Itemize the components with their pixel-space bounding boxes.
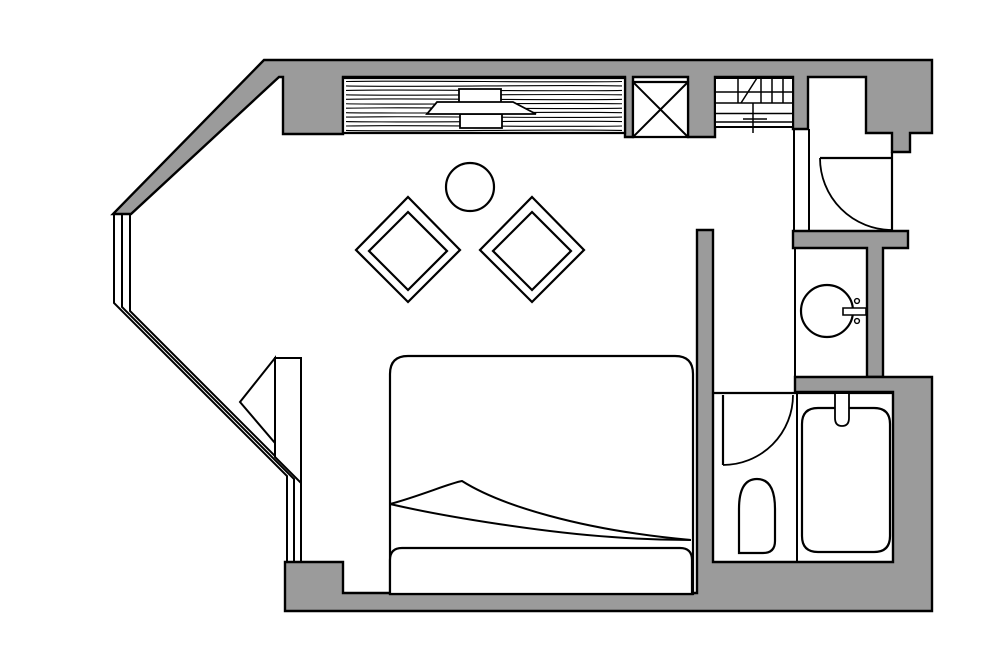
washbasin-tap-dot-top	[855, 299, 860, 304]
wardrobe-handle-bottom	[460, 114, 502, 128]
wardrobe-handle-top	[459, 89, 501, 103]
washbasin-tap-dot-bottom	[855, 319, 860, 324]
floor-plan	[0, 0, 1000, 653]
bed-footboard	[390, 548, 692, 594]
bathtub-faucet	[835, 394, 849, 426]
entry-door-swing-arc	[820, 158, 892, 230]
floorplan-svg	[0, 0, 1000, 653]
toilet	[739, 479, 775, 553]
bathtub	[802, 408, 890, 552]
bathroom-door-swing-arc	[723, 395, 793, 465]
washbasin-faucet-bar	[843, 308, 866, 315]
round-table	[446, 163, 494, 211]
